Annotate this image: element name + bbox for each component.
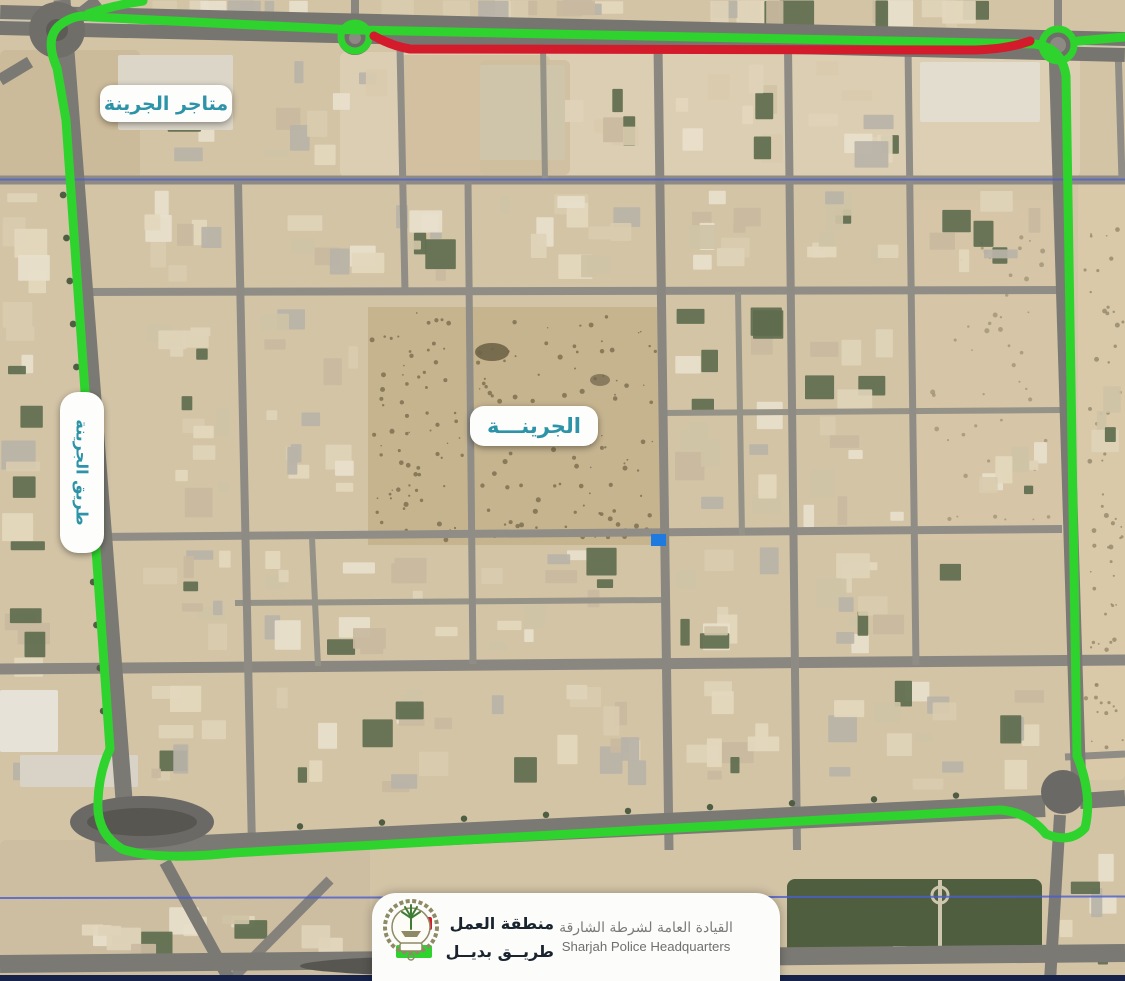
police-logo: القيادة العامة لشرطة الشارقة Sharjah Pol… [572,920,720,955]
blue-building-marker [651,534,666,546]
police-logo-english-text: Sharjah Police Headquarters [562,939,731,954]
police-emblem-icon [380,893,442,965]
shops-label: متاجر الجرينة [100,85,232,122]
satellite-map [0,0,1125,981]
district-label-text: الجرينـــة [487,414,581,438]
traffic-advisory-map: متاجر الجرينة الجرينـــة طريق الجرينة من… [0,0,1125,981]
road-label-text: طريق الجرينة [73,419,92,525]
police-logo-arabic-text: القيادة العامة لشرطة الشارقة [559,920,733,937]
shops-label-text: متاجر الجرينة [104,93,228,115]
alt-route-label: طريــق بديــل [444,942,554,961]
work-zone-label: منطقة العمل [444,914,554,933]
legend-panel: منطقة العمل طريــق بديــل القيادة العامة… [372,893,780,981]
district-label: الجرينـــة [470,406,598,446]
road-label: طريق الجرينة [60,392,104,553]
